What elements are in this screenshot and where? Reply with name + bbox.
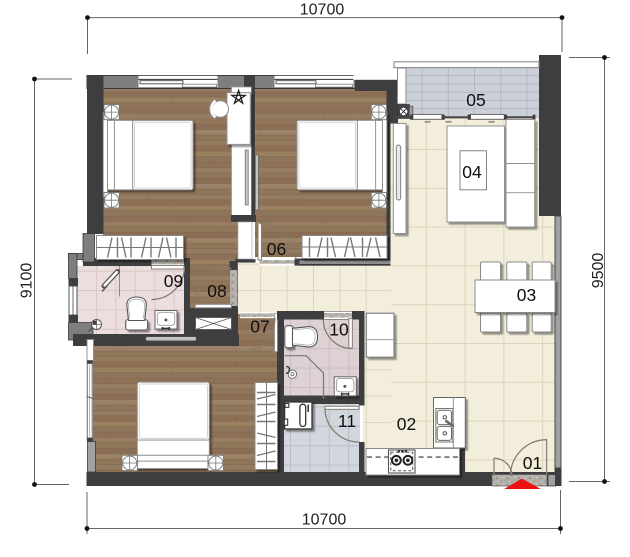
svg-text:10: 10 [329,320,349,340]
svg-text:10700: 10700 [302,512,347,529]
svg-text:9500: 9500 [590,253,607,289]
svg-text:9100: 9100 [19,263,36,299]
svg-text:10700: 10700 [300,2,345,19]
svg-text:07: 07 [250,317,269,337]
svg-text:06: 06 [267,239,286,259]
svg-text:09: 09 [164,271,183,291]
svg-text:11: 11 [338,411,356,431]
svg-text:03: 03 [517,285,536,305]
svg-text:02: 02 [397,414,416,434]
svg-text:01: 01 [523,453,542,473]
svg-text:04: 04 [462,162,482,182]
svg-text:08: 08 [207,281,226,301]
svg-text:05: 05 [466,90,485,110]
